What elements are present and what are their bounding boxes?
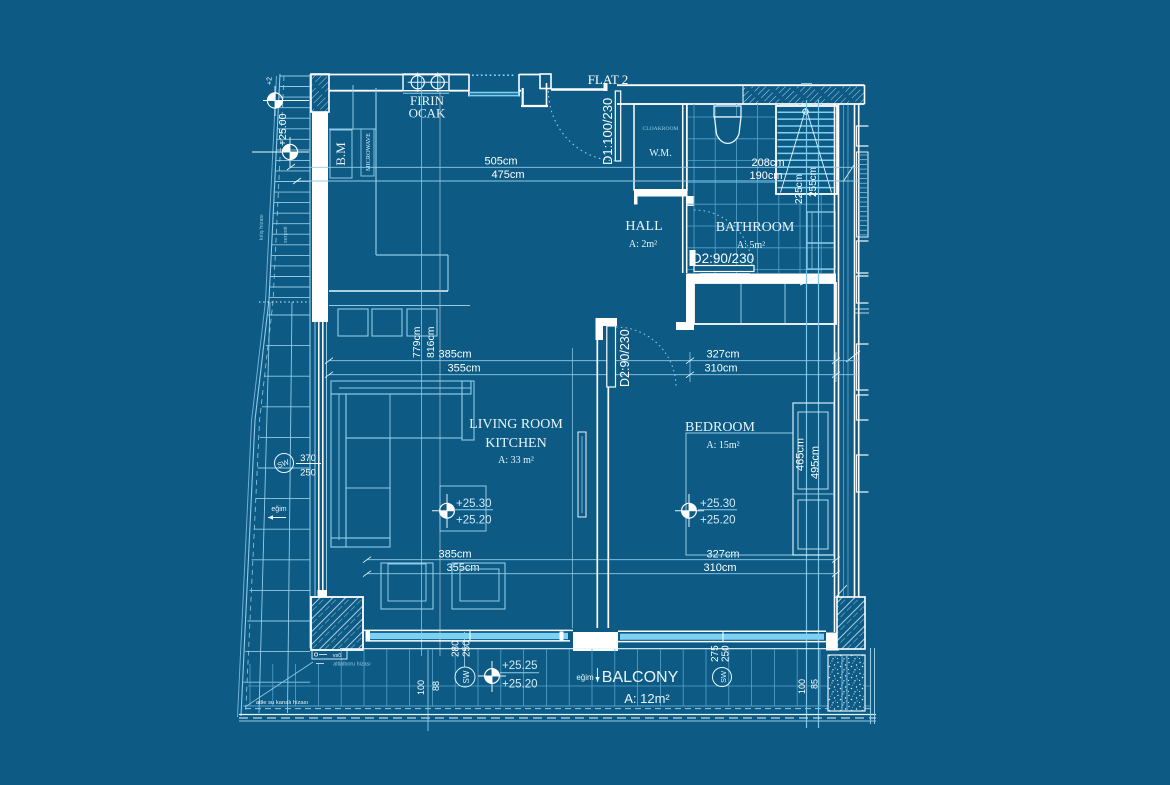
svg-text:779cm: 779cm [411, 326, 423, 358]
svg-text:A: 15m²: A: 15m² [706, 440, 739, 451]
svg-text:275: 275 [710, 645, 721, 662]
svg-text:465cm: 465cm [795, 438, 807, 471]
svg-text:SW: SW [462, 670, 471, 683]
svg-text:+25.20: +25.20 [700, 515, 736, 527]
svg-text:310cm: 310cm [703, 562, 736, 574]
svg-text:816cm: 816cm [425, 326, 437, 358]
svg-text:+25.20: +25.20 [502, 679, 538, 691]
svg-text:250: 250 [721, 645, 732, 662]
svg-text:kılış hizası: kılış hizası [259, 214, 265, 240]
svg-text:BALCONY: BALCONY [602, 669, 679, 686]
svg-text:vs0: vs0 [333, 653, 342, 659]
svg-text:KITCHEN: KITCHEN [485, 436, 546, 451]
svg-text:385cm: 385cm [438, 349, 471, 361]
svg-text:355cm: 355cm [446, 562, 479, 574]
svg-text:385cm: 385cm [438, 549, 471, 561]
svg-text:HALL: HALL [625, 219, 662, 234]
svg-text:+25.30: +25.30 [700, 498, 736, 510]
svg-text:85: 85 [810, 679, 820, 689]
svg-text:370: 370 [300, 453, 316, 464]
svg-text:327cm: 327cm [706, 349, 739, 361]
svg-text:+2: +2 [267, 77, 274, 85]
svg-text:CLOAKROOM: CLOAKROOM [642, 126, 678, 132]
svg-text:+25.30: +25.30 [456, 498, 492, 510]
svg-text:495cm: 495cm [810, 446, 822, 479]
svg-text:225cm: 225cm [794, 174, 805, 204]
svg-text:+25.20: +25.20 [456, 515, 492, 527]
svg-text:BATHROOM: BATHROOM [716, 220, 795, 235]
svg-text:250: 250 [462, 640, 473, 657]
svg-text:A: 12m²: A: 12m² [624, 691, 670, 706]
svg-text:W.M.: W.M. [649, 148, 671, 159]
svg-text:eğim: eğim [576, 673, 594, 682]
svg-text:475cm: 475cm [491, 169, 524, 181]
svg-text:A: 5m²: A: 5m² [737, 240, 765, 251]
svg-text:100: 100 [797, 679, 807, 694]
svg-text:serpoti: serpoti [283, 226, 289, 243]
svg-text:LIVING ROOM: LIVING ROOM [469, 417, 563, 432]
svg-text:355cm: 355cm [447, 363, 480, 375]
svg-text:B.M: B.M [333, 142, 348, 166]
svg-text:255cm: 255cm [808, 167, 819, 197]
svg-text:atile su kanalı hizası: atile su kanalı hizası [256, 700, 309, 706]
svg-text:MICROWAVE: MICROWAVE [365, 133, 372, 171]
svg-text:190cm: 190cm [749, 170, 782, 182]
svg-text:88: 88 [431, 681, 441, 691]
svg-text:310cm: 310cm [704, 363, 737, 375]
svg-text:505cm: 505cm [484, 156, 517, 168]
svg-text:D2:90/230: D2:90/230 [692, 251, 754, 266]
svg-text:altlalboru hizası: altlalboru hizası [333, 662, 370, 668]
svg-text:250: 250 [300, 468, 316, 479]
svg-text:280: 280 [451, 640, 462, 657]
svg-text:eğim: eğim [271, 506, 286, 513]
svg-text:+25.00: +25.00 [277, 113, 289, 146]
svg-text:100: 100 [416, 680, 426, 695]
svg-text:D2:90/230: D2:90/230 [618, 329, 632, 387]
svg-text:A: 33 m²: A: 33 m² [498, 455, 534, 466]
svg-text:SW: SW [719, 670, 728, 683]
svg-text:A: 2m²: A: 2m² [629, 239, 657, 250]
svg-text:+25.25: +25.25 [502, 660, 538, 672]
svg-text:D1:100/230: D1:100/230 [600, 98, 615, 165]
